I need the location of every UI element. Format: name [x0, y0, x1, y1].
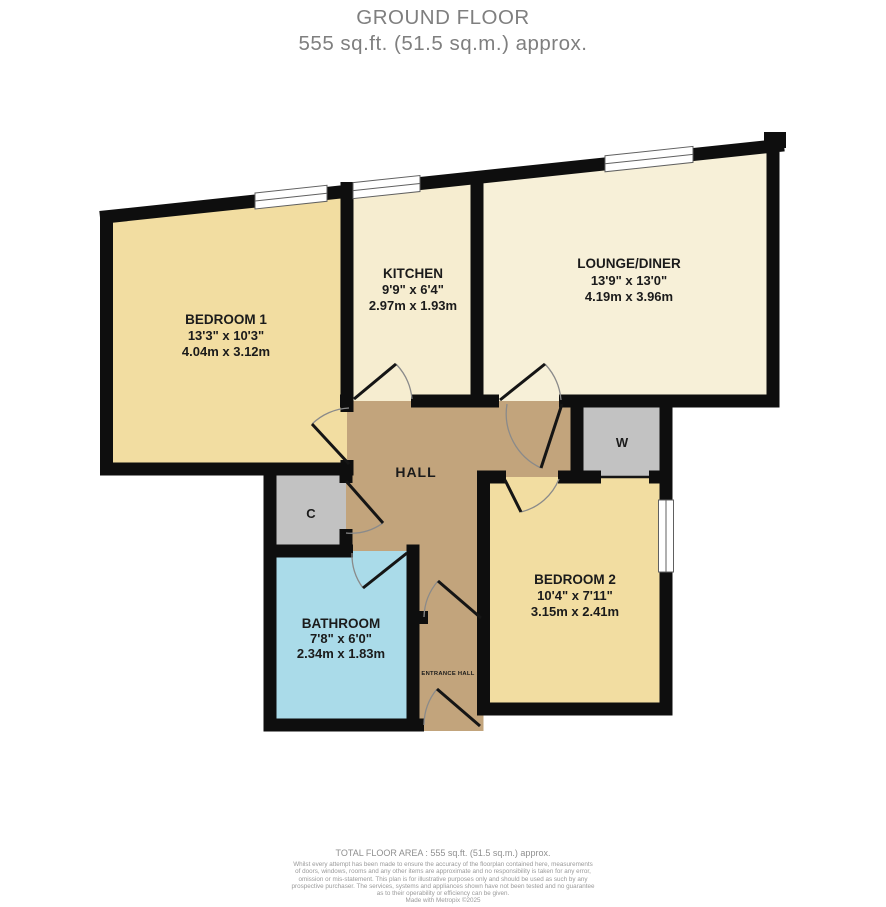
bedroom2-dimensions-imperial: 10'4" x 7'11": [537, 588, 613, 603]
bedroom1-dimensions-metric: 4.04m x 3.12m: [182, 344, 270, 359]
bedroom1-dimensions-imperial: 13'3" x 10'3": [188, 328, 264, 343]
kitchen-dimensions-imperial: 9'9" x 6'4": [382, 282, 444, 297]
corner-post: [764, 132, 786, 148]
total-floor-area: TOTAL FLOOR AREA : 555 sq.ft. (51.5 sq.m…: [0, 847, 886, 859]
bathroom-dimensions-imperial: 7'8" x 6'0": [310, 631, 372, 646]
hall-label: HALL: [395, 464, 436, 480]
bedroom1-label: BEDROOM 1: [185, 312, 267, 327]
disclaimer-line-4: prospective purchaser. The services, sys…: [0, 883, 886, 890]
bathroom-label: BATHROOM: [302, 616, 381, 631]
footer: TOTAL FLOOR AREA : 555 sq.ft. (51.5 sq.m…: [0, 847, 886, 905]
lounge-dimensions-metric: 4.19m x 3.96m: [585, 289, 673, 304]
wardrobe-label: W: [616, 435, 629, 450]
floorplan-page: GROUND FLOOR 555 sq.ft. (51.5 sq.m.) app…: [0, 0, 886, 907]
made-with-credit: Made with Metropix ©2025: [0, 897, 886, 904]
floorplan-drawing: BEDROOM 1 13'3" x 10'3" 4.04m x 3.12m KI…: [0, 0, 886, 907]
kitchen-dimensions-metric: 2.97m x 1.93m: [369, 298, 457, 313]
bedroom2-dimensions-metric: 3.15m x 2.41m: [531, 604, 619, 619]
lounge-label: LOUNGE/DINER: [577, 256, 681, 271]
cupboard-label: C: [306, 506, 316, 521]
disclaimer-line-2: of doors, windows, rooms and any other i…: [0, 868, 886, 875]
disclaimer-line-3: omission or mis-statement. This plan is …: [0, 876, 886, 883]
bedroom2-label: BEDROOM 2: [534, 572, 616, 587]
entrance-hall-label: ENTRANCE HALL: [421, 671, 474, 677]
lounge-dimensions-imperial: 13'9" x 13'0": [591, 273, 667, 288]
bathroom-dimensions-metric: 2.34m x 1.83m: [297, 646, 385, 661]
disclaimer-line-1: Whilst every attempt has been made to en…: [0, 861, 886, 868]
bedroom2-window: [659, 500, 674, 572]
kitchen-label: KITCHEN: [383, 266, 443, 281]
